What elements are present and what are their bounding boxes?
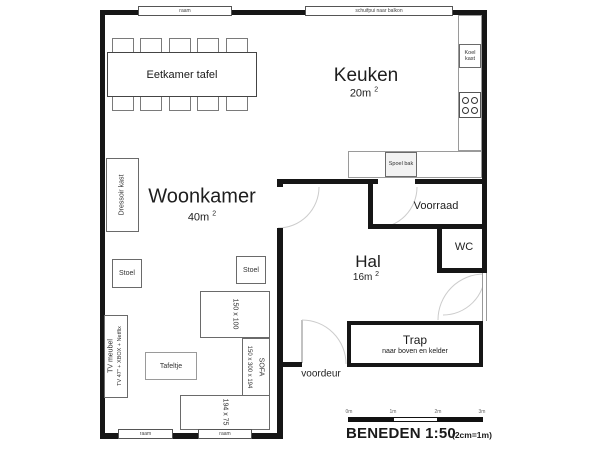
fridge-box: Koel kast	[459, 44, 481, 68]
dining-chair	[112, 38, 134, 53]
door-arc-hal	[278, 187, 319, 228]
armchair-right-label: Stoel	[243, 267, 259, 274]
window-bottom-right: raam	[198, 429, 252, 439]
dining-table-label: Eetkamer tafel	[147, 69, 218, 81]
wall-wc-left	[437, 229, 442, 273]
burner-icon	[462, 97, 469, 104]
dining-chair	[140, 38, 162, 53]
sliding-door-balcony-label: schuifpui naar balkon	[355, 8, 402, 14]
area-value-woonkamer: 40m	[188, 211, 209, 223]
plan-title: BENEDEN 1:50	[346, 425, 456, 442]
area-sup-woonkamer: 2	[212, 211, 216, 218]
stairs-box: Trap naar boven en kelder	[347, 321, 483, 367]
scale-bar-segment-1	[348, 417, 393, 422]
scale-tick-0m: 0m	[346, 409, 353, 415]
dining-chair	[112, 96, 134, 111]
armchair-left-label: Stoel	[119, 270, 135, 277]
back-door-opening	[482, 273, 487, 321]
front-door-label: voordeur	[301, 369, 340, 380]
area-sup-hal: 2	[375, 271, 379, 278]
scale-tick-2m: 2m	[435, 409, 442, 415]
dining-chair	[140, 96, 162, 111]
table-194x75-dims-label: 194 x 75	[222, 399, 229, 426]
wall-livingroom-hall-top	[277, 179, 283, 187]
window-bottom-right-label: raam	[219, 431, 230, 437]
dressoir-label: Dressoir kast	[119, 175, 126, 216]
room-label-hal: Hal	[355, 252, 381, 272]
scale-bar-segment-3	[438, 417, 483, 422]
armchair-right: Stoel	[236, 256, 266, 284]
dining-chair	[226, 96, 248, 111]
sink-label: Spoel bak	[389, 161, 413, 167]
stairs-note: naar boven en kelder	[382, 348, 448, 355]
wall-hall-bottom	[283, 362, 302, 367]
door-arc-voorraad	[376, 187, 417, 228]
stairs-label: Trap	[403, 333, 427, 347]
wall-livingroom-hall	[277, 228, 283, 439]
dining-chair	[197, 38, 219, 53]
wall-voorraad-left	[368, 184, 373, 229]
room-label-keuken: Keuken	[334, 65, 398, 87]
wall-wc-bottom	[437, 268, 487, 273]
window-bottom-left-label: raam	[140, 431, 151, 437]
scale-tick-3m: 3m	[479, 409, 486, 415]
window-top-raam: raam	[138, 6, 232, 16]
sofa-label: SOFA	[258, 358, 265, 377]
kitchen-counter-right	[458, 15, 482, 151]
tv-contents-label: TV 47" + XBOX + Netflix	[117, 326, 123, 386]
burner-icon	[471, 97, 478, 104]
door-arc-layer	[0, 0, 600, 450]
door-arc-front-door	[302, 320, 346, 364]
area-sup-keuken: 2	[374, 87, 378, 94]
sliding-door-balcony: schuifpui naar balkon	[305, 6, 453, 16]
area-label-hal: 16m 2	[353, 271, 379, 283]
tv-cabinet-label: TV meubel	[108, 339, 115, 373]
burner-icon	[462, 107, 469, 114]
dining-chair	[169, 96, 191, 111]
armchair-left: Stoel	[112, 259, 142, 288]
wall-kitchen-hall-right	[415, 179, 487, 184]
sofa-dims-label: 150 x 300 x 194	[246, 346, 252, 389]
scale-tick-1m: 1m	[390, 409, 397, 415]
room-label-wc: WC	[455, 241, 473, 253]
area-label-woonkamer: 40m 2	[188, 211, 216, 224]
dining-table: Eetkamer tafel	[107, 52, 257, 97]
area-value-hal: 16m	[353, 272, 372, 283]
coffee-table-dims-label: 150 x 100	[232, 299, 239, 330]
door-arc-wc	[443, 273, 485, 315]
stove-icon	[459, 92, 481, 118]
burner-icon	[471, 107, 478, 114]
room-label-voorraad: Voorraad	[414, 200, 459, 212]
side-table: Tafeltje	[145, 352, 197, 380]
window-bottom-left: raam	[118, 429, 173, 439]
scale-bar-segment-2	[393, 417, 438, 422]
sink-box: Spoel bak	[385, 152, 417, 177]
fridge-label: Koel kast	[460, 50, 480, 63]
dining-chair	[226, 38, 248, 53]
dining-chair	[197, 96, 219, 111]
plan-scale-note: (2cm=1m)	[452, 430, 492, 440]
wall-kitchen-hall-left	[277, 179, 378, 184]
wall-right	[482, 10, 487, 273]
wall-voorraad-bottom	[368, 224, 487, 229]
side-table-label: Tafeltje	[160, 363, 182, 370]
area-label-keuken: 20m 2	[350, 87, 378, 100]
window-top-raam-label: raam	[179, 8, 190, 14]
area-value-keuken: 20m	[350, 87, 371, 99]
room-label-woonkamer: Woonkamer	[148, 186, 255, 209]
floor-plan: Koel kast Spoel bak Eetkamer tafel Dress…	[0, 0, 600, 450]
dining-chair	[169, 38, 191, 53]
